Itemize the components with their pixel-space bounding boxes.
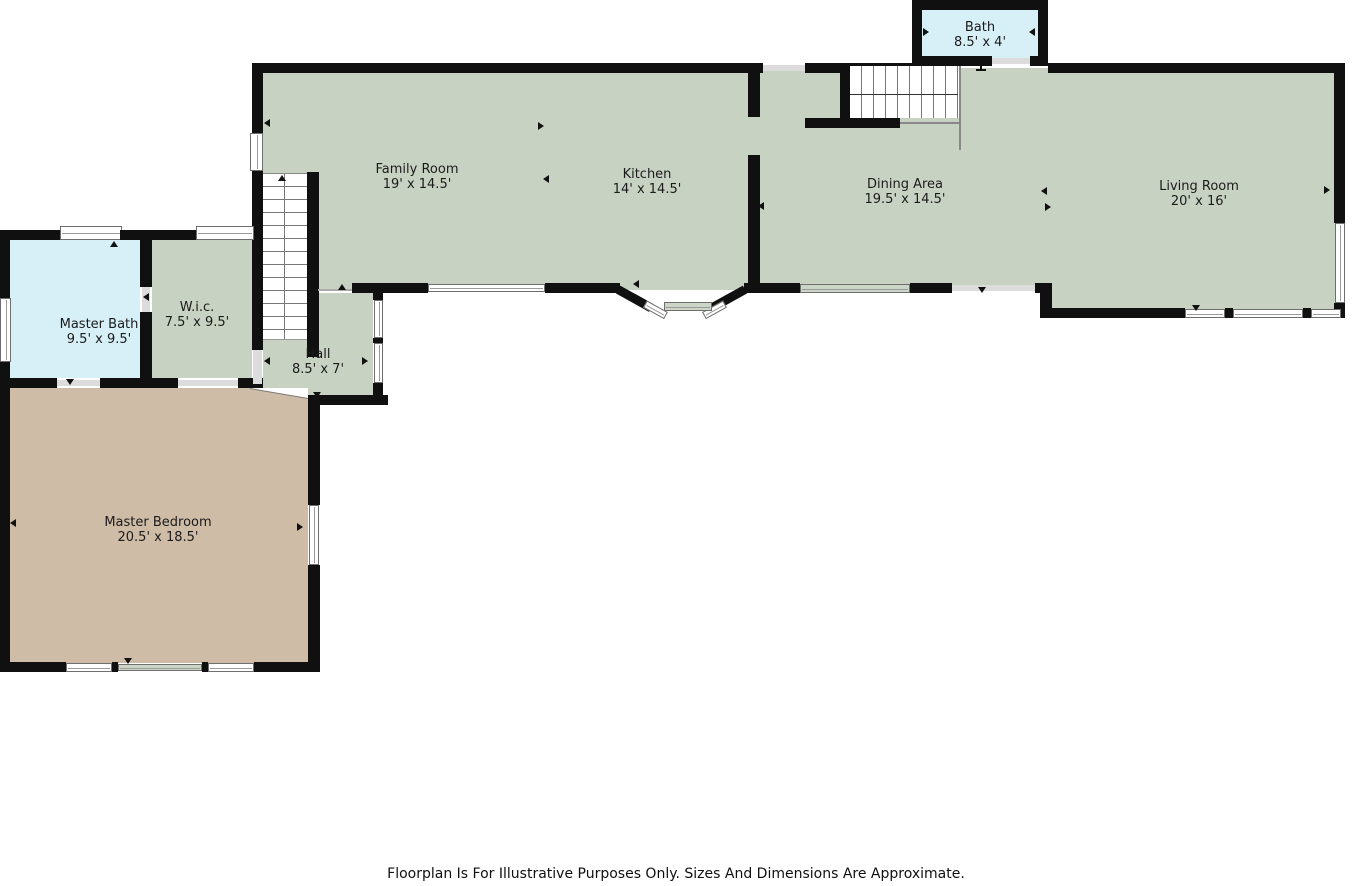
window <box>196 226 254 240</box>
door-marker-icon <box>1029 28 1035 36</box>
room-dims: 8.5' x 4' <box>954 35 1006 50</box>
wall <box>100 378 178 388</box>
room-name: Bath <box>954 20 1006 35</box>
door-marker-icon <box>543 175 549 183</box>
room-name: Living Room <box>1159 179 1239 194</box>
window <box>66 663 112 672</box>
hall-area <box>319 293 373 398</box>
door-marker-icon <box>297 523 303 531</box>
door-marker-icon <box>748 175 754 183</box>
room-name: Dining Area <box>865 177 946 192</box>
disclaimer-text: Floorplan Is For Illustrative Purposes O… <box>0 866 1352 882</box>
wall <box>545 283 620 293</box>
patio-door <box>118 664 202 671</box>
door-marker-icon <box>264 357 270 365</box>
wall <box>744 283 800 293</box>
window <box>250 133 263 171</box>
room-label-wic: W.i.c. 7.5' x 9.5' <box>165 300 229 330</box>
room-name: Master Bedroom <box>104 515 211 530</box>
room-label-living-room: Living Room 20' x 16' <box>1159 179 1239 209</box>
wall-opening <box>763 65 805 71</box>
door-marker-icon <box>978 287 986 293</box>
door-marker-icon <box>110 241 118 247</box>
wall <box>352 283 428 293</box>
wall <box>120 230 198 240</box>
door-opening <box>952 285 1035 291</box>
stair-edge <box>959 66 961 150</box>
wall <box>140 230 152 287</box>
wall <box>910 283 952 293</box>
room-label-hall: Hall 8.5' x 7' <box>292 347 344 377</box>
stair-rail <box>284 174 285 340</box>
window <box>1233 309 1303 318</box>
room-label-family-room: Family Room 19' x 14.5' <box>376 162 459 192</box>
room-dims: 14' x 14.5' <box>613 182 682 197</box>
room-label-bath: Bath 8.5' x 4' <box>954 20 1006 50</box>
door-opening <box>253 350 262 384</box>
wall <box>1048 63 1345 73</box>
door-opening <box>178 380 238 386</box>
door-marker-icon <box>1324 186 1330 194</box>
room-dims: 19' x 14.5' <box>376 177 459 192</box>
window <box>1185 309 1225 318</box>
window <box>374 300 383 338</box>
stair-edge <box>263 339 307 340</box>
bay-window <box>664 302 712 311</box>
wall <box>255 63 763 73</box>
window <box>800 284 910 293</box>
stairs-direction-icon <box>843 91 849 99</box>
door-marker-icon <box>1045 203 1051 211</box>
stairs-up-icon <box>278 175 286 181</box>
floorplan-canvas: Bath 8.5' x 4' Family Room 19' x 14.5' K… <box>0 0 1352 886</box>
room-name: Kitchen <box>613 167 682 182</box>
room-dims: 20.5' x 18.5' <box>104 530 211 545</box>
door-opening <box>57 380 100 386</box>
room-label-dining-area: Dining Area 19.5' x 14.5' <box>865 177 946 207</box>
door-marker-icon <box>66 379 74 385</box>
wall <box>805 118 900 128</box>
window <box>428 284 545 292</box>
room-label-kitchen: Kitchen 14' x 14.5' <box>613 167 682 197</box>
door-marker-icon <box>264 119 270 127</box>
master-bath-area <box>10 240 140 378</box>
window <box>374 343 383 383</box>
door-marker-icon <box>362 357 368 365</box>
door-marker-icon <box>338 284 346 290</box>
door-opening <box>992 58 1030 64</box>
room-dims: 19.5' x 14.5' <box>865 192 946 207</box>
window <box>309 505 319 565</box>
wall <box>0 230 10 298</box>
wall <box>308 395 320 505</box>
room-dims: 7.5' x 9.5' <box>165 315 229 330</box>
room-name: W.i.c. <box>165 300 229 315</box>
wall <box>1050 308 1185 318</box>
wall <box>373 293 383 300</box>
door-marker-icon <box>124 658 132 664</box>
door-marker-icon <box>143 293 149 301</box>
staircase-lower <box>263 174 307 340</box>
wall <box>748 63 760 117</box>
door-marker-icon <box>10 519 16 527</box>
door-marker-icon <box>1041 187 1047 195</box>
wall <box>308 565 320 672</box>
window <box>1311 309 1341 318</box>
wall <box>0 662 66 672</box>
wall <box>1334 63 1345 223</box>
wall <box>0 378 10 672</box>
stair-edge <box>900 122 960 124</box>
room-dims: 9.5' x 9.5' <box>60 332 139 347</box>
room-divider-line <box>318 289 352 291</box>
staircase-upper <box>850 66 960 118</box>
window <box>1335 223 1345 303</box>
room-dims: 8.5' x 7' <box>292 362 344 377</box>
wall <box>1225 308 1233 318</box>
door-marker-icon <box>633 280 639 288</box>
window <box>60 226 122 240</box>
room-name: Hall <box>292 347 344 362</box>
wall <box>140 312 152 388</box>
door-jamb-icon <box>976 69 986 71</box>
wall <box>1303 308 1311 318</box>
wall <box>1030 56 1048 66</box>
wall <box>1341 308 1345 318</box>
door-marker-icon <box>758 202 764 210</box>
window <box>208 663 254 672</box>
door-marker-icon <box>975 2 983 8</box>
door-marker-icon <box>423 66 431 72</box>
room-name: Family Room <box>376 162 459 177</box>
room-dims: 20' x 16' <box>1159 194 1239 209</box>
wall <box>307 172 319 357</box>
stair-rail <box>850 94 958 95</box>
door-marker-icon <box>923 28 929 36</box>
room-label-master-bath: Master Bath 9.5' x 9.5' <box>60 317 139 347</box>
stair-edge <box>263 173 307 174</box>
door-marker-icon <box>1192 305 1200 311</box>
window <box>0 298 11 362</box>
door-marker-icon <box>313 392 321 398</box>
wall <box>252 63 263 350</box>
door-marker-icon <box>538 122 544 130</box>
room-name: Master Bath <box>60 317 139 332</box>
room-label-master-bedroom: Master Bedroom 20.5' x 18.5' <box>104 515 211 545</box>
